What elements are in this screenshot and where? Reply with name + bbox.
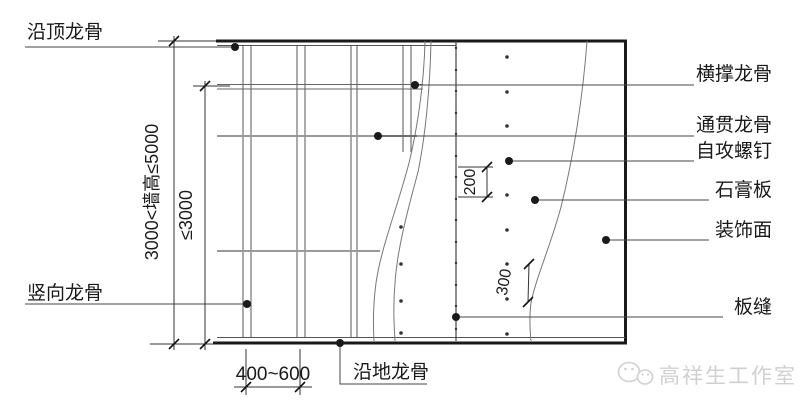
label-gypsum-board: 石膏板 — [715, 178, 772, 201]
watermark: 高祥生工作室 — [619, 363, 798, 389]
label-self-tapping-screw: 自攻螺钉 — [696, 140, 772, 162]
break-lines — [373, 41, 587, 341]
horizontal-members — [217, 85, 423, 252]
label-floor-track: 沿地龙骨 — [353, 361, 429, 383]
label-board-seam: 板缝 — [734, 296, 772, 318]
label-through-stud: 通贯龙骨 — [696, 114, 772, 136]
dim-edge-screw-spacing: 200 — [462, 169, 479, 196]
dim-field-screw-spacing: 300 — [494, 268, 515, 297]
label-decorative-surface: 装饰面 — [715, 219, 772, 241]
dim-wall-height-range: 3000<墙高≤5000 — [142, 124, 162, 260]
label-ceiling-track: 沿顶龙骨 — [27, 21, 103, 43]
label-vertical-stud: 竖向龙骨 — [27, 282, 103, 304]
wechat-icon — [619, 363, 653, 385]
dim-stud-spacing: 400~600 — [236, 364, 311, 385]
dim-inner-height-max: ≤3000 — [176, 190, 196, 240]
watermark-text: 高祥生工作室 — [659, 365, 797, 388]
label-horizontal-brace-stud: 横撑龙骨 — [696, 63, 772, 85]
break-line-right — [530, 41, 587, 341]
drawing-canvas: 沿顶龙骨 竖向龙骨 横撑龙骨 通贯龙骨 自攻螺钉 石膏板 装饰面 板缝 沿地龙骨… — [0, 0, 799, 408]
partition-wall-detail-drawing: 沿顶龙骨 竖向龙骨 横撑龙骨 通贯龙骨 自攻螺钉 石膏板 装饰面 板缝 沿地龙骨… — [0, 0, 799, 408]
